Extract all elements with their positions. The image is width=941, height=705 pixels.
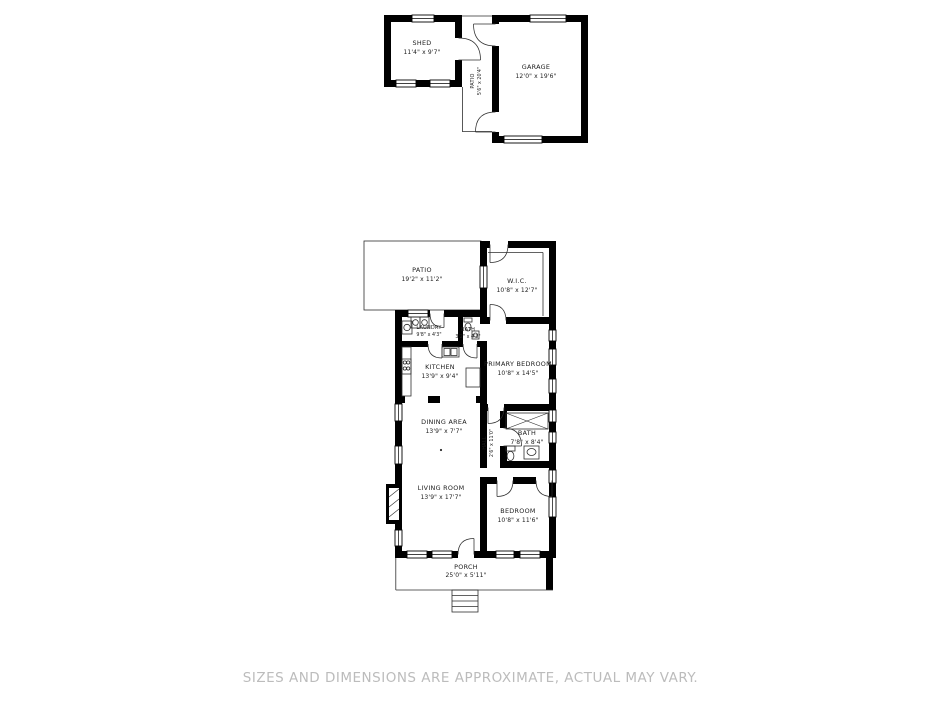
door-arc — [458, 539, 474, 555]
door-arc — [474, 24, 496, 46]
kitchen-sink-icon — [442, 347, 459, 357]
window — [496, 551, 514, 558]
garage-label: GARAGE — [522, 63, 551, 71]
room-labels: SHED 11'4" x 9'7" GARAGE 12'0" x 19'6" P… — [401, 39, 556, 579]
floorplan-svg: SHED 11'4" x 9'7" GARAGE 12'0" x 19'6" P… — [0, 0, 941, 705]
bath-label: BATH — [518, 429, 536, 437]
breezeway-patio-label: PATIO — [470, 73, 476, 88]
bath-dims: 7'8" x 8'4" — [510, 439, 543, 446]
window — [412, 15, 434, 22]
door-arc — [476, 112, 496, 132]
window — [549, 470, 556, 483]
window — [395, 530, 402, 546]
bedroom-dims: 10'8" x 11'6" — [497, 517, 538, 524]
door-arc — [459, 38, 481, 60]
window — [504, 136, 542, 143]
primary-bedroom-dims: 10'8" x 14'5" — [497, 370, 538, 377]
patio-label: PATIO — [412, 266, 432, 274]
utility-sink-icon — [402, 321, 412, 334]
window — [407, 551, 427, 558]
kitchen-dims: 13'9" x 9'4" — [421, 373, 458, 380]
window — [549, 330, 556, 341]
living-room-dims: 13'9" x 17'7" — [420, 494, 461, 501]
kitchen-counter — [402, 347, 411, 396]
wic-label: W.I.C. — [507, 277, 527, 285]
porch-dims: 25'0" x 5'11" — [445, 572, 486, 579]
laundry-label: LAUNDRY — [416, 325, 442, 331]
patio-dims: 19'2" x 11'2" — [401, 276, 442, 283]
small-bath-dims: 3'2" x 4'3" — [455, 334, 480, 340]
door-arc — [490, 245, 508, 263]
window — [408, 310, 428, 317]
outbuilding-doors — [459, 24, 496, 132]
bathtub-icon — [506, 413, 548, 429]
small-bath-label: BATH — [461, 327, 475, 333]
fireplace-icon — [386, 484, 402, 524]
dining-area-label: DINING AREA — [421, 418, 467, 426]
hall-label: HALL — [482, 436, 488, 450]
toilet-icon — [506, 446, 515, 461]
bedroom-label: BEDROOM — [500, 507, 535, 515]
wic-dims: 10'8" x 12'7" — [496, 287, 537, 294]
window — [549, 410, 556, 422]
stove-icon — [402, 359, 411, 374]
dining-area-dims: 13'9" x 7'7" — [425, 428, 462, 435]
window — [432, 551, 452, 558]
window — [549, 432, 556, 443]
main-house — [364, 241, 556, 612]
window — [395, 446, 402, 464]
garage-dims: 12'0" x 19'6" — [515, 73, 556, 80]
window — [520, 551, 540, 558]
sink-icon — [524, 446, 539, 459]
hall-dims: 2'6" x 11'0" — [489, 429, 495, 457]
living-room-label: LIVING ROOM — [418, 484, 465, 492]
kitchen-label: KITCHEN — [425, 363, 455, 371]
porch-label: PORCH — [454, 563, 478, 571]
shed-dims: 11'4" x 9'7" — [403, 49, 440, 56]
window — [549, 379, 556, 393]
door-arc — [497, 481, 513, 497]
window — [395, 404, 402, 421]
breezeway-outline — [462, 16, 492, 132]
shed-label: SHED — [412, 39, 431, 47]
primary-bedroom-label: PRIMARY BEDROOM — [484, 360, 552, 368]
stairs-icon — [452, 590, 478, 612]
door-arc — [428, 344, 442, 358]
door-arc — [490, 305, 506, 321]
door-arc — [463, 344, 477, 358]
outbuilding — [384, 15, 588, 143]
laundry-dims: 9'8" x 4'3" — [416, 332, 441, 338]
ceiling-light-dot — [440, 449, 442, 451]
disclaimer-text: SIZES AND DIMENSIONS ARE APPROXIMATE, AC… — [0, 670, 941, 686]
floorplan-canvas: SHED 11'4" x 9'7" GARAGE 12'0" x 19'6" P… — [0, 0, 941, 705]
window — [396, 80, 416, 87]
window — [480, 266, 487, 288]
window — [430, 80, 450, 87]
window — [530, 15, 566, 22]
refrigerator-icon — [466, 368, 480, 387]
breezeway-patio-dims: 5'6" x 20'4" — [477, 67, 483, 95]
window — [549, 497, 556, 517]
outbuilding-walls — [384, 15, 588, 143]
